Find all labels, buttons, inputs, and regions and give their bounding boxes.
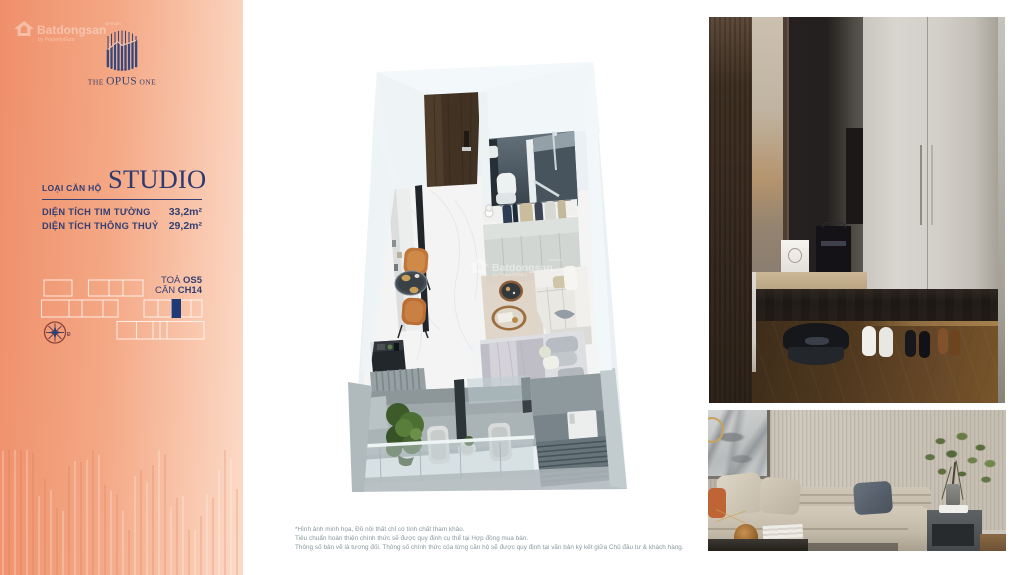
svg-text:by PropertyGuru: by PropertyGuru [493, 272, 527, 277]
svg-text:vietnam: vietnam [548, 257, 563, 262]
